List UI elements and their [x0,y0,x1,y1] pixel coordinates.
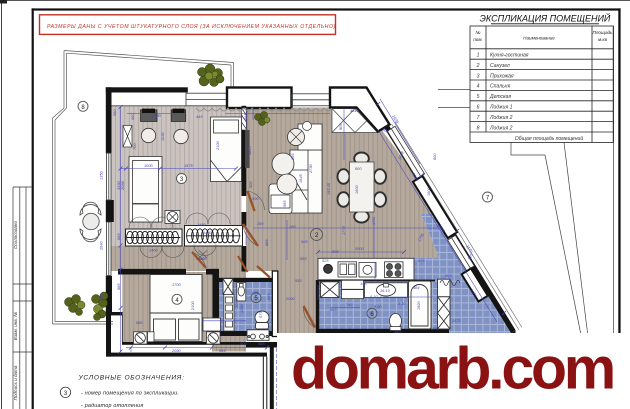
svg-text:2410: 2410 [195,256,205,261]
svg-text:6.10: 6.10 [370,294,378,299]
svg-text:Взам. инв. №: Взам. инв. № [13,312,18,340]
svg-text:503: 503 [445,273,452,278]
svg-text:2640: 2640 [99,241,104,251]
svg-text:4845: 4845 [350,108,359,113]
svg-text:Общая площадь помещений: Общая площадь помещений [515,135,584,142]
svg-text:1771: 1771 [371,216,376,225]
svg-text:4: 4 [477,84,480,90]
svg-text:16:10: 16:10 [380,288,391,293]
svg-text:1600: 1600 [426,187,431,196]
svg-text:7: 7 [477,115,480,121]
svg-text:165,45: 165,45 [326,182,331,195]
svg-text:Кухня-гостиная: Кухня-гостиная [490,53,529,59]
svg-text:Согласовано: Согласовано [13,221,18,249]
svg-text:8: 8 [477,125,480,131]
svg-text:РАЗМЕРЫ ДАНЫ С УЧЕТОМ ШТУКАТУР: РАЗМЕРЫ ДАНЫ С УЧЕТОМ ШТУКАТУРНОГО СЛОЯ … [47,24,336,30]
svg-text:2100: 2100 [190,301,195,311]
svg-text:484: 484 [413,285,420,290]
svg-text:500: 500 [240,341,247,346]
svg-text:2730: 2730 [308,164,313,174]
svg-text:525: 525 [322,258,329,263]
svg-text:Площадь: Площадь [593,30,614,35]
svg-text:573: 573 [258,311,263,318]
svg-text:700: 700 [132,143,137,150]
svg-text:3: 3 [477,73,480,79]
svg-text:1645: 1645 [298,174,303,183]
svg-text:295: 295 [256,221,264,226]
svg-text:8.00: 8.00 [374,304,382,309]
svg-text:2090: 2090 [171,348,181,353]
svg-text:1480: 1480 [203,230,212,235]
svg-text:1030: 1030 [160,132,165,141]
svg-text:685: 685 [252,290,259,295]
svg-text:- радиатор отопления: - радиатор отопления [81,403,143,409]
svg-text:595: 595 [266,293,271,300]
svg-text:1773: 1773 [341,226,346,235]
svg-text:1290: 1290 [239,304,244,313]
svg-text:domarb.com: domarb.com [291,336,613,402]
svg-text:2100: 2100 [215,141,220,151]
svg-text:1920: 1920 [416,301,421,310]
svg-text:960: 960 [99,293,104,300]
svg-text:Прихожая: Прихожая [490,73,514,79]
svg-text:1575: 1575 [184,163,193,168]
svg-text:445: 445 [196,114,203,119]
svg-text:УСЛОВНЫЕ ОБОЗНАЧЕНИЯ:: УСЛОВНЫЕ ОБОЗНАЧЕНИЯ: [78,375,185,382]
svg-text:Наименование: Наименование [523,36,555,41]
svg-text:1350: 1350 [99,171,104,180]
svg-text:5: 5 [477,94,480,100]
svg-text:ЭКСПЛИКАЦИЯ ПОМЕЩЕНИЙ: ЭКСПЛИКАЦИЯ ПОМЕЩЕНИЙ [480,13,611,24]
svg-text:Спальня: Спальня [490,84,511,90]
svg-text:555: 555 [300,256,307,261]
svg-text:Детская: Детская [489,94,511,100]
svg-text:605: 605 [301,239,308,244]
svg-text:555: 555 [295,278,302,283]
svg-text:805: 805 [332,249,339,254]
svg-text:555: 555 [219,348,226,353]
svg-text:8.10: 8.10 [398,301,406,306]
svg-text:6: 6 [477,105,480,111]
svg-text:565: 565 [282,200,287,207]
svg-text:905: 905 [338,123,343,130]
svg-text:355: 355 [290,153,295,160]
svg-text:2090: 2090 [285,296,295,301]
svg-text:743: 743 [346,302,353,307]
svg-text:885: 885 [264,239,269,246]
svg-text:1: 1 [477,53,480,59]
svg-text:575: 575 [418,258,425,263]
svg-text:Подпись и дата: Подпись и дата [13,365,18,400]
svg-text:800: 800 [355,166,362,171]
svg-text:1600: 1600 [354,185,359,194]
svg-text:500: 500 [252,196,259,201]
svg-text:- номер помещения по экспликац: - номер помещения по экспликации. [81,391,179,397]
svg-text:585: 585 [258,341,265,346]
svg-text:1000: 1000 [144,163,153,168]
svg-text:1480: 1480 [197,222,206,227]
svg-text:Лоджия 2: Лоджия 2 [489,125,513,131]
svg-text:1573: 1573 [452,318,461,323]
svg-text:Санузел: Санузел [490,63,510,69]
svg-text:Лоджия 2: Лоджия 2 [489,115,513,121]
svg-text:500: 500 [248,181,253,188]
svg-text:586: 586 [136,320,143,325]
svg-text:143: 143 [360,281,367,286]
svg-text:2090: 2090 [234,299,239,309]
svg-text:2: 2 [476,63,480,69]
svg-text:Лоджия 1: Лоджия 1 [489,105,513,111]
svg-text:пом.: пом. [473,37,483,42]
svg-text:м.кв: м.кв [598,37,608,42]
svg-text:№: № [476,30,481,35]
svg-text:1170: 1170 [430,326,439,331]
svg-text:1460: 1460 [149,248,158,253]
svg-text:1700: 1700 [172,282,181,287]
svg-text:3000: 3000 [355,246,364,251]
svg-text:800: 800 [432,153,437,160]
svg-text:580: 580 [112,109,117,116]
svg-text:4845: 4845 [247,146,252,155]
svg-text:2: 2 [315,232,319,239]
